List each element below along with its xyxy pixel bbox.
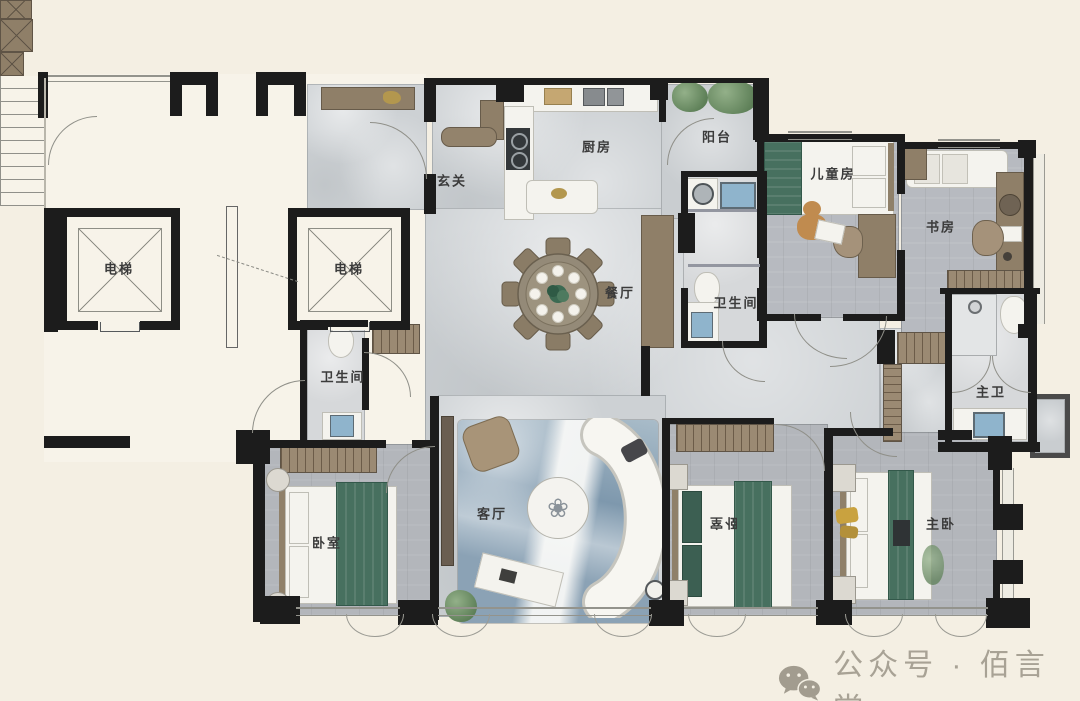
wall-pier bbox=[753, 78, 769, 140]
shoe-cabinet-hatch bbox=[0, 0, 32, 19]
tv-cabinet bbox=[441, 416, 454, 566]
burner bbox=[511, 133, 528, 150]
wall-pier bbox=[206, 72, 218, 116]
partition bbox=[688, 264, 760, 267]
study-chair bbox=[972, 220, 1004, 256]
wall bbox=[424, 174, 436, 214]
wall bbox=[430, 396, 439, 620]
wall bbox=[940, 288, 1040, 294]
wall bbox=[253, 430, 265, 622]
dining-cabinet-hatch bbox=[0, 19, 33, 52]
wall bbox=[662, 418, 774, 424]
bed-pillow bbox=[289, 492, 309, 544]
casement-mark bbox=[688, 614, 746, 637]
decor-sculpture bbox=[383, 91, 401, 104]
bed-tray bbox=[893, 520, 910, 546]
kids-pillow bbox=[852, 146, 886, 176]
room-label-bedroom-2: 卧室 bbox=[708, 517, 738, 530]
wall bbox=[44, 78, 46, 212]
cutting-board bbox=[544, 88, 572, 105]
floor-plan: ❀ bbox=[0, 0, 1080, 701]
wall-column bbox=[496, 78, 524, 102]
room-label-kitchen: 厨房 bbox=[582, 141, 612, 154]
wall-pier bbox=[649, 600, 684, 626]
bedroom-2-closet bbox=[676, 424, 774, 452]
casement-mark bbox=[935, 614, 987, 637]
hall-closet-2 bbox=[897, 332, 949, 364]
globe bbox=[999, 194, 1021, 216]
room-label-elevator-right: 电梯 bbox=[334, 263, 364, 276]
casement-mark bbox=[346, 614, 404, 637]
wall bbox=[662, 418, 670, 622]
room-label-study: 书房 bbox=[926, 221, 956, 234]
balcony-plant-2 bbox=[708, 80, 758, 114]
wall bbox=[938, 430, 972, 440]
wall bbox=[44, 208, 58, 332]
bed-2-pillow bbox=[682, 491, 702, 543]
room-label-foyer: 玄关 bbox=[437, 175, 467, 188]
elevator-left-door-frame bbox=[100, 322, 140, 332]
wall-chunk bbox=[678, 213, 695, 253]
wall bbox=[897, 250, 905, 314]
washer-dial bbox=[692, 183, 714, 205]
foyer-bench bbox=[441, 127, 497, 147]
vanity-sink-2 bbox=[330, 415, 354, 437]
room-label-elevator-left: 电梯 bbox=[104, 263, 134, 276]
room-label-master-bath: 主卫 bbox=[976, 386, 1006, 399]
wall-corner bbox=[986, 598, 1030, 628]
room-label-bedroom: 卧室 bbox=[312, 537, 342, 550]
wall bbox=[993, 468, 1000, 512]
desk-lamp bbox=[1003, 252, 1012, 261]
room-label-master-bedroom: 主卧 bbox=[926, 518, 956, 531]
wall-pier bbox=[294, 72, 306, 116]
wall bbox=[262, 440, 386, 448]
window-top-lobby bbox=[48, 75, 170, 82]
wall bbox=[681, 171, 688, 217]
nightstand bbox=[266, 468, 290, 492]
wechat-icon bbox=[776, 663, 823, 701]
wall bbox=[641, 346, 650, 396]
partition bbox=[688, 209, 760, 212]
nightstand-5 bbox=[832, 464, 856, 492]
wall bbox=[945, 292, 952, 444]
shower-head bbox=[968, 300, 982, 314]
wall bbox=[681, 288, 688, 344]
master-plant bbox=[922, 545, 944, 585]
wall-pier bbox=[993, 560, 1023, 584]
wall-pier bbox=[170, 72, 182, 116]
kids-bed-blanket bbox=[764, 139, 802, 215]
bed-pillow-2 bbox=[289, 546, 309, 598]
laundry-sink bbox=[720, 182, 756, 209]
wall bbox=[824, 428, 833, 622]
kids-desk bbox=[858, 214, 896, 278]
gold-cushion-2 bbox=[839, 525, 858, 539]
wall bbox=[44, 436, 130, 448]
room-label-bathroom: 卫生间 bbox=[713, 297, 758, 310]
casement-mark bbox=[845, 614, 903, 637]
wall-pier bbox=[398, 600, 438, 625]
kids-pillow-2 bbox=[852, 178, 886, 208]
wall bbox=[681, 171, 767, 177]
burner-2 bbox=[511, 152, 528, 169]
wall bbox=[38, 72, 48, 118]
kids-headboard bbox=[888, 143, 894, 211]
kitchen-sink-2 bbox=[607, 88, 624, 106]
dining-tall-cabinet bbox=[641, 215, 674, 348]
vanity-sink bbox=[691, 312, 713, 338]
watermark: 公众号 · 佰言堂 bbox=[776, 640, 1080, 701]
wall bbox=[304, 320, 368, 327]
window-study bbox=[938, 139, 1000, 148]
study-desk bbox=[996, 172, 1024, 278]
wall-corner bbox=[260, 596, 300, 624]
wall bbox=[897, 142, 905, 194]
wall-pier bbox=[988, 436, 1012, 470]
wall bbox=[757, 142, 764, 258]
dining-table-set bbox=[500, 236, 616, 352]
fruit-bowl bbox=[551, 188, 567, 199]
bed-blanket bbox=[336, 482, 388, 606]
room-label-bathroom-2: 卫生间 bbox=[320, 371, 365, 384]
window-kids bbox=[788, 131, 852, 140]
casement-mark bbox=[594, 614, 652, 637]
gold-cushion bbox=[835, 507, 859, 525]
watermark-text: 公众号 · 佰言堂 bbox=[833, 640, 1080, 701]
room-label-kids-room: 儿童房 bbox=[810, 168, 855, 181]
room-label-living: 客厅 bbox=[477, 508, 507, 521]
wall-pier bbox=[256, 72, 268, 116]
wall bbox=[661, 78, 761, 83]
bed-2-blanket bbox=[734, 481, 772, 609]
casement-mark bbox=[432, 614, 490, 637]
room-label-dining: 餐厅 bbox=[605, 287, 635, 300]
room-label-balcony: 阳台 bbox=[702, 131, 732, 144]
wall bbox=[659, 84, 666, 122]
daybed-cushion-2 bbox=[942, 154, 968, 184]
kitchen-sink bbox=[583, 88, 605, 106]
wall bbox=[432, 78, 664, 85]
balcony-plant bbox=[672, 82, 708, 112]
kids-cabinet-hatch bbox=[0, 52, 24, 76]
stair-divider bbox=[226, 206, 238, 348]
window-seat-master bbox=[1002, 468, 1014, 610]
master-sink bbox=[973, 412, 1005, 438]
